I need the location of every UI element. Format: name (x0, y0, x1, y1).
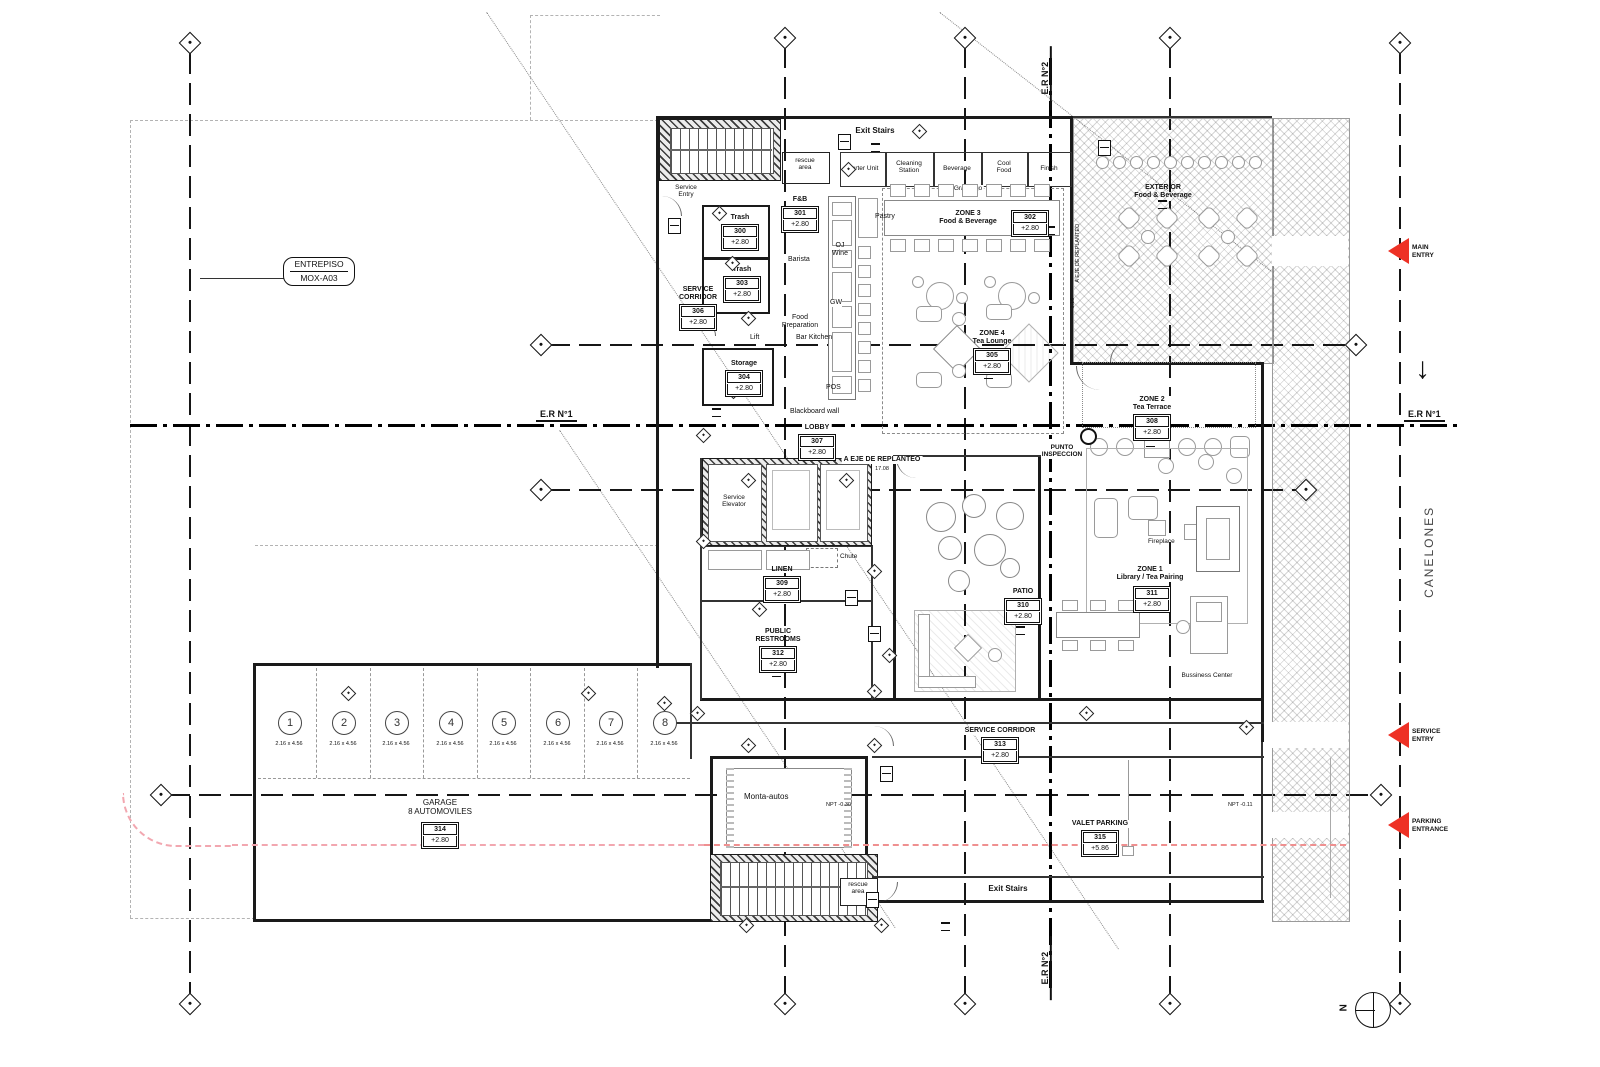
exit-stairs-label: Exit Stairs (986, 884, 1029, 893)
wall (700, 698, 874, 701)
service-entry-label: SERVICEENTRY (1412, 728, 1440, 744)
linen-label: LINEN (772, 566, 793, 574)
parking-stall-number: 5 (492, 711, 516, 735)
room-tag-305: 305+2.80 (973, 348, 1011, 375)
planter (1096, 156, 1109, 169)
bar-stool (858, 265, 871, 278)
patio-stone (996, 502, 1024, 530)
stall-size: 2.16 x 4.56 (650, 741, 677, 747)
patio-sofa (918, 676, 976, 688)
sofa (1094, 498, 1118, 538)
monta-autos-label: Monta-autos (744, 792, 788, 801)
counter-equipment (832, 272, 852, 302)
wall (872, 876, 1264, 878)
rescue-area-label: rescuearea (795, 157, 815, 172)
service-entry-label: ServiceEntry (675, 184, 697, 199)
door-swing (878, 882, 898, 902)
wall-corridor (872, 756, 1264, 758)
business-center-label: Bussiness Center (1182, 672, 1233, 679)
chair (1090, 640, 1106, 651)
parking-stall-number: 1 (278, 711, 302, 735)
entry-walk (1272, 812, 1348, 838)
planter (1147, 156, 1160, 169)
station-finish: Finish (1040, 165, 1057, 172)
wall (1261, 362, 1264, 742)
room-tag-312: 312+2.80 (759, 646, 797, 673)
station-cleaning: CleaningStation (896, 160, 922, 175)
zone2-label: ZONE 2Tea Terrace (1131, 396, 1173, 412)
grid-bubble (179, 993, 202, 1016)
chair (890, 239, 906, 252)
section-marker-icon (912, 124, 928, 140)
car-lift-rail (726, 768, 734, 848)
axis-er1-label-left: E.R N°1 (536, 409, 577, 422)
parking-stall-number: 3 (385, 711, 409, 735)
chair (1062, 640, 1078, 651)
exit-stairs-label: Exit Stairs (855, 126, 894, 135)
stall-size: 2.16 x 4.56 (436, 741, 463, 747)
section-marker-icon (867, 564, 883, 580)
grid-bubble (1159, 27, 1182, 50)
room-tag-315: 315+5.86 (1081, 830, 1119, 857)
stall-divider (637, 668, 638, 778)
planter (1198, 156, 1211, 169)
sofa (1128, 496, 1158, 520)
drawing-title-box: ENTREPISO MOX-A03 (283, 257, 355, 286)
fireplace-label: Fireplace (1148, 538, 1175, 545)
business-desk (1196, 602, 1222, 622)
level-mark-icon (712, 408, 721, 417)
stall-divider (423, 668, 424, 778)
service-corridor-b-label: SERVICE CORRIDOR (963, 727, 1038, 735)
room-tag-314: 314+2.80 (421, 822, 459, 849)
npt-030-label: NPT -0.30 (826, 802, 851, 808)
bar-kitchen-label: Bar Kitchen (796, 334, 832, 342)
section-marker-icon (341, 686, 357, 702)
room-tag-302: 302+2.80 (1011, 210, 1049, 237)
station-cool-food: CoolFood (997, 160, 1012, 175)
bar-stool (858, 303, 871, 316)
room-trash-1-label: Trash (731, 214, 750, 222)
stair-stringer (670, 149, 772, 151)
chair (938, 239, 954, 252)
chair (890, 184, 906, 197)
down-arrow-icon: ↓ (1415, 352, 1430, 386)
wall-patio (1038, 455, 1041, 701)
planter (1215, 156, 1228, 169)
room-tag-313: 313+2.80 (981, 737, 1019, 764)
section-marker-icon (657, 696, 673, 712)
stall-size: 2.16 x 4.56 (596, 741, 623, 747)
counter-equipment (832, 332, 852, 372)
axis-er2-label-top: E.R N°2 (1040, 46, 1052, 110)
floor-plan-canvas: rescuearea Starter Unit CleaningStation … (0, 0, 1600, 1067)
chair (1118, 600, 1134, 611)
exterior-fnb-label: EXTERIORFood & Beverage (1134, 184, 1192, 200)
room-storage-label: Storage (731, 360, 757, 368)
station-beverage: Beverage (943, 165, 971, 172)
terrace-table (1221, 230, 1235, 244)
sofa (916, 306, 942, 322)
planter (1249, 156, 1262, 169)
north-compass-icon (1355, 992, 1391, 1028)
axis-er1-label-right: E.R N°1 (1404, 409, 1445, 422)
parking-entrance-arrow-icon (1388, 812, 1409, 838)
armchair (1226, 468, 1242, 484)
parking-stall-number: 8 (653, 711, 677, 735)
inspection-point-icon (1080, 428, 1097, 445)
dining-table (1056, 612, 1140, 638)
valet-post (1128, 760, 1129, 846)
side-table (952, 312, 966, 326)
side-table (952, 364, 966, 378)
room-tag-308: 308+2.80 (1133, 414, 1171, 441)
patio-chair (988, 648, 1002, 662)
patio-stone (938, 536, 962, 560)
side-table (1148, 520, 1166, 536)
door-swing (662, 196, 682, 216)
food-prep-label: FoodPreparation (782, 314, 818, 330)
wall-garage (253, 663, 692, 666)
chair (914, 184, 930, 197)
zone3-label: ZONE 3Food & Beverage (939, 210, 997, 226)
restrooms-label: PUBLICRESTROOMS (755, 628, 800, 644)
section-marker-icon (696, 428, 712, 444)
title-leader-line (200, 278, 284, 279)
wall-patio (872, 698, 1042, 701)
section-marker-icon (690, 706, 706, 722)
grid-bubble (1389, 32, 1412, 55)
drawing-title-line1: ENTREPISO (290, 258, 348, 272)
planter (1164, 156, 1177, 169)
level-mark-icon (941, 922, 950, 931)
zone4-label: ZONE 4Tea Lounge (973, 330, 1012, 346)
counter-equipment (832, 306, 852, 328)
chair (1010, 239, 1026, 252)
level-mark-icon (1016, 626, 1025, 635)
chair (956, 292, 968, 304)
stair-treads (670, 128, 774, 174)
grid-bubble (179, 32, 202, 55)
chair (914, 239, 930, 252)
stall-size: 2.16 x 4.56 (543, 741, 570, 747)
grid-bubble (954, 27, 977, 50)
service-corridor-a-label: SERVICECORRIDOR (679, 286, 717, 302)
service-entry-arrow-icon (1388, 722, 1409, 748)
door-tag (668, 218, 681, 234)
parking-stall-number: 6 (546, 711, 570, 735)
valet-edge (1330, 758, 1331, 898)
stall-size: 2.16 x 4.56 (275, 741, 302, 747)
fireplace-inner (1206, 518, 1230, 560)
site-boundary (530, 15, 531, 120)
grid-bubble (530, 479, 553, 502)
chute-label: Chute (840, 553, 857, 560)
bar-stool (858, 322, 871, 335)
site-boundary (130, 120, 658, 121)
door-tag (866, 892, 879, 908)
patio-stone (926, 502, 956, 532)
service-elevator-label: ServiceElevator (722, 494, 746, 509)
grid-bubble (1389, 993, 1412, 1016)
oj-wine-label: OJWine (832, 242, 848, 258)
wall (656, 116, 659, 668)
drive-path (232, 844, 704, 846)
garage-label: GARAGE8 AUTOMOVILES (408, 798, 472, 816)
level-mark-icon (871, 143, 880, 152)
wall (1261, 742, 1263, 902)
stall-divider (316, 668, 317, 778)
door-swing (1076, 366, 1100, 390)
punto-inspeccion-label: PUNTOINSPECCION (1042, 444, 1082, 459)
chair (1090, 600, 1106, 611)
eje-replanteo-vertical-label: A EJE DE REPLANTEO (1075, 207, 1081, 299)
room-tag-300: 300+2.80 (721, 224, 759, 251)
door-tag (880, 766, 893, 782)
stall-size: 2.16 x 4.56 (382, 741, 409, 747)
wall (1040, 698, 1264, 701)
drive-path (122, 793, 234, 847)
site-boundary (130, 918, 255, 919)
npt-011-label: NPT -0.11 (1228, 802, 1253, 808)
grid-bubble (774, 993, 797, 1016)
bar-stool (858, 284, 871, 297)
elevator-car (772, 470, 810, 530)
bar-stool (858, 341, 871, 354)
section-marker-icon (741, 738, 757, 754)
section-marker-icon (867, 684, 883, 700)
bar-stool (858, 360, 871, 373)
armchair (1158, 458, 1174, 474)
planter (1130, 156, 1143, 169)
terrace-table (1141, 230, 1155, 244)
room-tag-310: 310+2.80 (1004, 598, 1042, 625)
barista-label: Barista (788, 256, 810, 264)
site-boundary (530, 15, 660, 16)
door-tag (1098, 140, 1111, 156)
site-boundary (255, 545, 658, 546)
wall (865, 756, 868, 856)
chair (938, 184, 954, 197)
blackboard-wall-label: Blackboard wall (790, 408, 839, 416)
chair (1028, 292, 1040, 304)
patio-stone (962, 494, 986, 518)
chair (984, 276, 996, 288)
door-tag (838, 134, 851, 150)
gw-label: GW (830, 299, 842, 307)
grid-line-vertical (189, 52, 191, 997)
room-tag-307: 307+2.80 (798, 434, 836, 461)
entry-walk (1272, 236, 1348, 266)
bar-stool (858, 246, 871, 259)
wall-patio (893, 455, 896, 701)
eje-dim-label: 17.08 (875, 466, 889, 472)
grid-bubble (530, 334, 553, 357)
main-entry-label: MAINENTRY (1412, 244, 1434, 260)
chair (1010, 184, 1026, 197)
parking-stall-number: 7 (599, 711, 623, 735)
room-tag-303: 303+2.80 (723, 276, 761, 303)
chair (912, 276, 924, 288)
room-fnb-label: F&B (793, 196, 807, 204)
planter (1113, 156, 1126, 169)
street-name-label: CANELONES (1423, 508, 1437, 598)
armchair (1198, 454, 1214, 470)
rescue-area-label: rescuearea (848, 881, 868, 896)
room-tag-306: 306+2.80 (679, 304, 717, 331)
room-tag-301: 301+2.80 (781, 206, 819, 233)
parking-entrance-label: PARKINGENTRANCE (1412, 818, 1448, 834)
parking-stall-number: 2 (332, 711, 356, 735)
grid-bubble (1159, 993, 1182, 1016)
pastry-label: Pastry (875, 213, 895, 221)
patio-label: PATIO (1013, 588, 1033, 596)
sofa (986, 304, 1012, 320)
stall-edge (258, 778, 690, 779)
bar-stool (858, 379, 871, 392)
planter (1181, 156, 1194, 169)
grid-bubble (954, 993, 977, 1016)
wall-garage (253, 663, 256, 922)
wall (872, 900, 1264, 903)
entry-walk (1272, 722, 1348, 748)
patio-stone (1000, 558, 1020, 578)
room-tag-304: 304+2.80 (725, 370, 763, 397)
valet-post (1122, 846, 1134, 856)
pos-label: POS (826, 384, 841, 392)
chair (1118, 640, 1134, 651)
axis-er2-label-bottom: E.R N°2 (1040, 936, 1052, 1000)
grid-bubble (774, 27, 797, 50)
stall-size: 2.16 x 4.56 (489, 741, 516, 747)
chair (1034, 239, 1050, 252)
drawing-title-line2: MOX-A03 (290, 272, 348, 285)
grid-bubble (1370, 784, 1393, 807)
main-entry-arrow-icon (1388, 238, 1409, 264)
door-tag (868, 626, 881, 642)
lift-label: Lift (750, 334, 759, 342)
stall-divider (530, 668, 531, 778)
stall-divider (477, 668, 478, 778)
door-tag (845, 590, 858, 606)
counter-equipment (832, 202, 852, 216)
stall-divider (370, 668, 371, 778)
section-marker-icon (752, 602, 768, 618)
chair (986, 184, 1002, 197)
stall-divider (584, 668, 585, 778)
wall (710, 756, 868, 759)
wall (1072, 116, 1272, 118)
patio-stone (948, 570, 970, 592)
room-tag-311: 311+2.80 (1133, 586, 1171, 613)
sofa (916, 372, 942, 388)
eje-replanteo-label: A EJE DE REPLANTEO (842, 456, 923, 464)
wall-corridor (656, 722, 1264, 724)
desk-chair (1176, 620, 1190, 634)
stall-size: 2.16 x 4.56 (329, 741, 356, 747)
room-tag-309: 309+2.80 (763, 576, 801, 603)
lobby-label: LOBBY (803, 424, 832, 432)
linen-shelf (708, 550, 762, 570)
north-label: N (1338, 998, 1350, 1018)
chair (986, 239, 1002, 252)
level-mark-icon (1158, 200, 1167, 209)
valet-parking-label: VALET PARKING (1070, 820, 1130, 828)
zone1-label: ZONE 1Library / Tea Pairing (1115, 566, 1186, 582)
eje-dim2-label: 1.16 (1070, 288, 1076, 318)
chair (962, 239, 978, 252)
planter (1232, 156, 1245, 169)
chute-box (806, 548, 838, 568)
chair (1034, 184, 1050, 197)
parking-stall-number: 4 (439, 711, 463, 735)
valet-lane (704, 844, 1346, 846)
chair (962, 184, 978, 197)
wall-garage (253, 919, 714, 922)
grid-line-vertical (1399, 52, 1401, 997)
section-marker-icon (1079, 706, 1095, 722)
chair (1062, 600, 1078, 611)
